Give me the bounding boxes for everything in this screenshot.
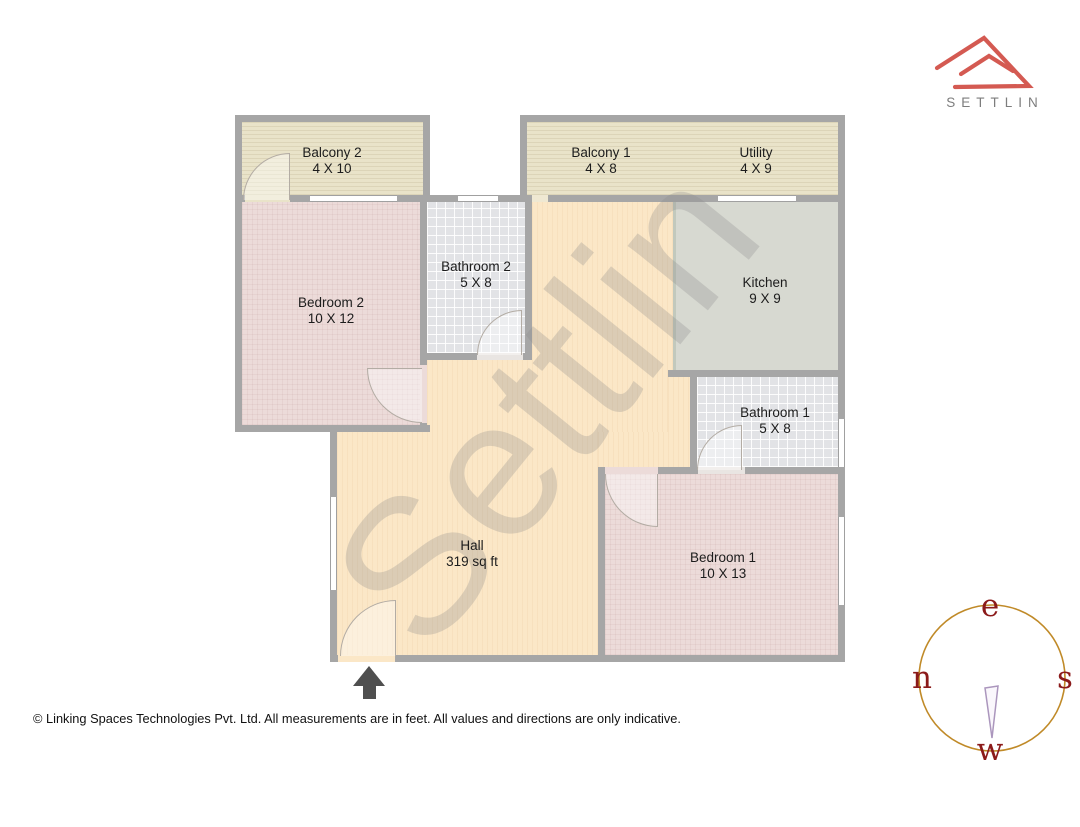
entrance-opening [338, 655, 395, 662]
room-label-balcony-1: Balcony 1 4 X 8 [526, 145, 676, 178]
wall [690, 370, 697, 474]
wall [423, 115, 430, 202]
brand-name: SETTLIN [915, 95, 1075, 110]
room-label-bedroom-2: Bedroom 2 10 X 12 [256, 295, 406, 328]
room-name: Balcony 2 [257, 145, 407, 161]
room-name: Utility [681, 145, 831, 161]
room-label-kitchen: Kitchen 9 X 9 [690, 275, 840, 308]
wall [235, 115, 430, 122]
room-dims: 5 X 8 [700, 421, 850, 437]
room-dims: 4 X 8 [526, 161, 676, 177]
entrance-arrow-icon [353, 666, 385, 699]
room-name: Kitchen [690, 275, 840, 291]
room-dims: 4 X 9 [681, 161, 831, 177]
door-opening [605, 467, 658, 474]
room-hall [427, 360, 532, 432]
room-dims: 4 X 10 [257, 161, 407, 177]
room-name: Bedroom 1 [648, 550, 798, 566]
room-label-bathroom-2: Bathroom 2 5 X 8 [401, 259, 551, 292]
compass-rose: e s w n [912, 592, 1077, 764]
arrow-stem [363, 686, 376, 699]
window [718, 195, 796, 202]
room-hall [532, 202, 673, 467]
window [330, 497, 337, 590]
wall [598, 467, 605, 662]
room-label-bathroom-1: Bathroom 1 5 X 8 [700, 405, 850, 438]
room-label-hall: Hall 319 sq ft [397, 538, 547, 571]
arrow-head [353, 666, 385, 686]
room-name: Balcony 1 [526, 145, 676, 161]
wall [520, 115, 845, 122]
window [838, 517, 845, 605]
kitchen-counter-line [673, 202, 676, 370]
room-name: Bedroom 2 [256, 295, 406, 311]
compass-south-label: s [1057, 660, 1073, 696]
room-dims: 10 X 12 [256, 311, 406, 327]
window [458, 195, 498, 202]
room-name: Hall [397, 538, 547, 554]
room-dims: 10 X 13 [648, 566, 798, 582]
settlin-logo-roof-icon [920, 30, 1070, 95]
wall [235, 115, 242, 432]
room-label-utility: Utility 4 X 9 [681, 145, 831, 178]
wall [330, 655, 845, 662]
compass-west-label: w [977, 732, 1004, 764]
room-dims: 5 X 8 [401, 275, 551, 291]
compass-east-label: e [981, 592, 999, 624]
room-label-bedroom-1: Bedroom 1 10 X 13 [648, 550, 798, 583]
compass-north-label: n [912, 660, 932, 696]
compass-needle-icon [985, 686, 998, 738]
room-name: Bathroom 1 [700, 405, 850, 421]
room-dims: 9 X 9 [690, 291, 840, 307]
room-dims: 319 sq ft [397, 554, 547, 570]
room-name: Bathroom 2 [401, 259, 551, 275]
door-opening [532, 195, 548, 202]
room-hall [598, 432, 690, 467]
copyright-disclaimer: © Linking Spaces Technologies Pvt. Ltd. … [33, 711, 681, 726]
window [310, 195, 397, 202]
room-label-balcony-2: Balcony 2 4 X 10 [257, 145, 407, 178]
